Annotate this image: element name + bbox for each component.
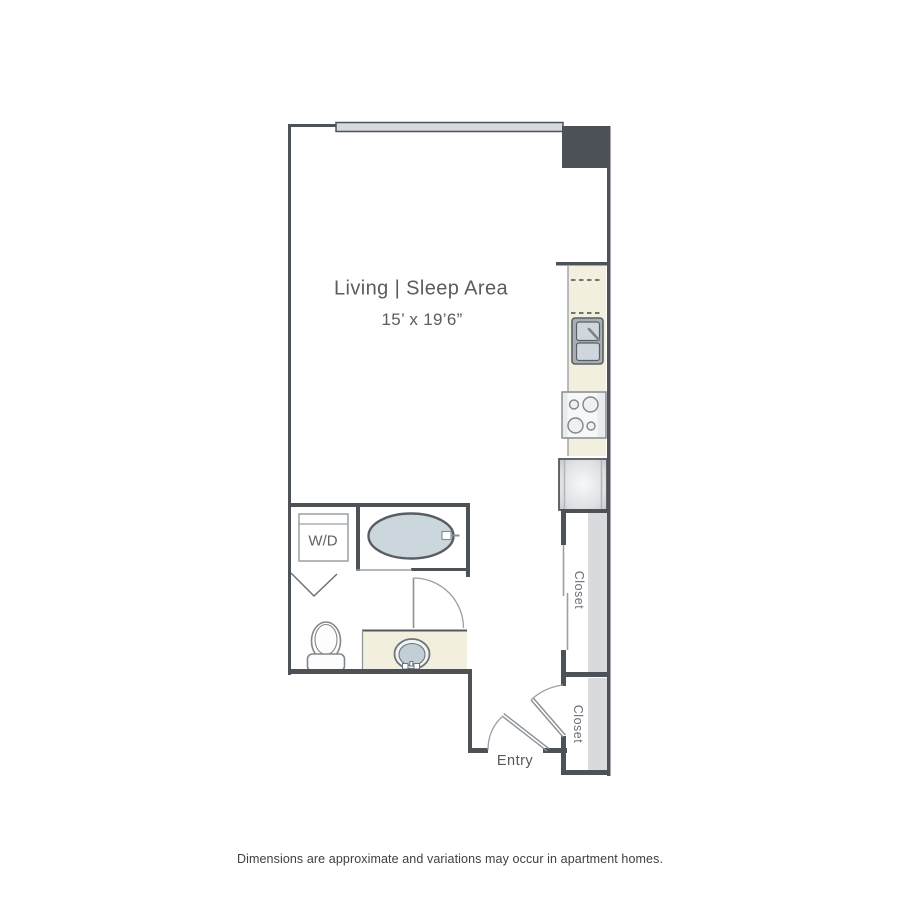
closet-sliding-doors <box>564 545 568 650</box>
bathtub <box>369 514 460 559</box>
closet-upper-label: Closet <box>572 571 586 609</box>
faucet-spout-icon <box>410 662 413 667</box>
faucet-handle-icon <box>414 664 420 670</box>
living-area-dimensions: 15’ x 19’6” <box>381 310 462 330</box>
bathroom-door <box>414 578 464 628</box>
refrigerator <box>559 459 607 510</box>
entry-door <box>488 714 549 751</box>
stove <box>562 392 606 438</box>
toilet <box>308 622 345 671</box>
window <box>336 123 563 132</box>
disclaimer-text: Dimensions are approximate and variation… <box>237 852 663 866</box>
burner-icon <box>570 400 579 409</box>
tub-faucet-icon <box>442 532 451 540</box>
closet-lower-label: Closet <box>571 705 585 743</box>
entry-label: Entry <box>497 753 533 769</box>
living-area-label: Living | Sleep Area <box>334 278 508 301</box>
washer-dryer-label: W/D <box>308 533 337 550</box>
closet-shading <box>588 513 607 771</box>
kitchen-sink <box>572 318 603 364</box>
burner-icon <box>583 397 598 412</box>
structural-column <box>562 126 610 168</box>
floor-plan-drawing <box>0 0 900 900</box>
vanity-sink <box>395 639 430 669</box>
faucet-handle-icon <box>403 664 409 670</box>
walls <box>288 124 611 776</box>
burner-icon <box>587 422 595 430</box>
burner-icon <box>568 418 583 433</box>
closet-door <box>531 685 565 737</box>
floor-plan-page: Living | Sleep Area 15’ x 19’6” W/D Clos… <box>0 0 900 900</box>
wd-bifold-door <box>291 573 337 596</box>
